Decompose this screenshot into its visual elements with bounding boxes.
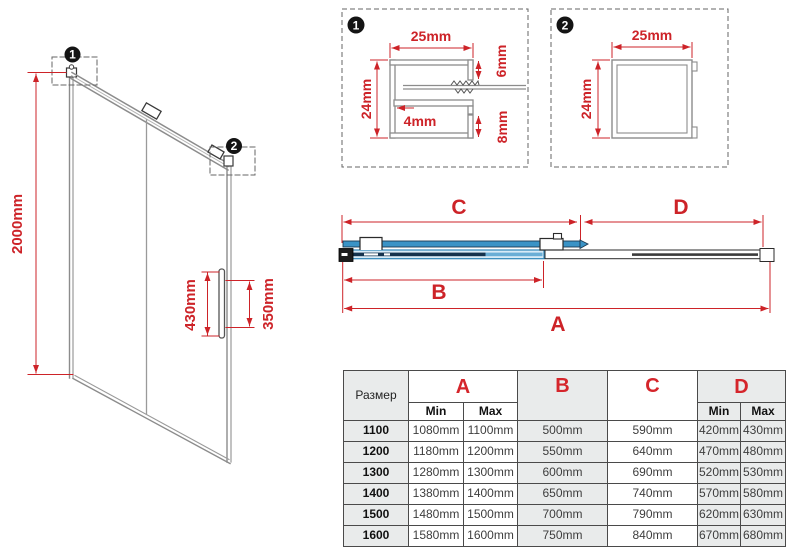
c-cell: 740mm bbox=[608, 484, 698, 505]
table-row: 1400 1380mm 1400mm 650mm 740mm 570mm 580… bbox=[344, 484, 786, 505]
c-cell: 590mm bbox=[608, 421, 698, 442]
size-cell: 1300 bbox=[344, 463, 409, 484]
column-header-b: B bbox=[518, 371, 608, 421]
table-row: 1500 1480mm 1500mm 700mm 790mm 620mm 630… bbox=[344, 505, 786, 526]
c-cell: 640mm bbox=[608, 442, 698, 463]
connector-bracket bbox=[540, 239, 563, 251]
b-cell: 600mm bbox=[518, 463, 608, 484]
door-diagram: 1 2 2000mm 430mm 350mm bbox=[9, 47, 277, 464]
a-min-cell: 1080mm bbox=[409, 421, 464, 442]
plan-c-label: C bbox=[451, 196, 466, 219]
detail-1-number: 1 bbox=[353, 18, 360, 32]
a-max-cell: 1600mm bbox=[464, 526, 518, 547]
b-cell: 500mm bbox=[518, 421, 608, 442]
a-min-cell: 1380mm bbox=[409, 484, 464, 505]
size-column-header: Размер bbox=[344, 371, 409, 421]
callout-1-number: 1 bbox=[69, 48, 76, 62]
d-max-cell: 580mm bbox=[741, 484, 786, 505]
a-min-cell: 1580mm bbox=[409, 526, 464, 547]
plan-b-label: B bbox=[431, 281, 446, 304]
detail-view-1: 1 25mm 24mm 4m bbox=[342, 9, 528, 167]
detail-view-2: 2 25mm 24mm bbox=[551, 9, 728, 167]
d-min-cell: 670mm bbox=[698, 526, 741, 547]
handle-length-label: 430mm bbox=[182, 279, 199, 331]
a-max-cell: 1400mm bbox=[464, 484, 518, 505]
column-header-a: A bbox=[409, 371, 518, 403]
gasket-serration bbox=[451, 81, 479, 85]
column-header-d: D bbox=[698, 371, 786, 403]
a-min-header: Min bbox=[409, 403, 464, 421]
callout-2-number: 2 bbox=[231, 139, 238, 153]
d-max-cell: 530mm bbox=[741, 463, 786, 484]
size-cell: 1400 bbox=[344, 484, 409, 505]
detail-2-width-label: 25mm bbox=[632, 27, 672, 43]
b-cell: 650mm bbox=[518, 484, 608, 505]
right-wall-profile bbox=[760, 249, 774, 262]
a-max-cell: 1500mm bbox=[464, 505, 518, 526]
rail-profile-section bbox=[612, 60, 697, 138]
a-min-cell: 1180mm bbox=[409, 442, 464, 463]
a-max-cell: 1200mm bbox=[464, 442, 518, 463]
c-cell: 790mm bbox=[608, 505, 698, 526]
d-min-cell: 520mm bbox=[698, 463, 741, 484]
d-max-cell: 680mm bbox=[741, 526, 786, 547]
plan-view: C D B A bbox=[339, 196, 774, 336]
a-min-cell: 1280mm bbox=[409, 463, 464, 484]
b-cell: 750mm bbox=[518, 526, 608, 547]
table-row: 1600 1580mm 1600mm 750mm 840mm 670mm 680… bbox=[344, 526, 786, 547]
detail-1-bottom-lip-label: 8mm bbox=[494, 111, 510, 144]
size-cell: 1600 bbox=[344, 526, 409, 547]
door-height-label: 2000mm bbox=[9, 194, 26, 254]
a-max-cell: 1100mm bbox=[464, 421, 518, 442]
plan-a-label: A bbox=[550, 313, 565, 336]
handle-inner-label: 350mm bbox=[260, 278, 277, 330]
shower-door-spec-sheet: 1 2 2000mm 430mm 350mm 1 bbox=[0, 0, 800, 552]
column-header-c: C bbox=[608, 371, 698, 421]
size-cell: 1100 bbox=[344, 421, 409, 442]
d-min-cell: 420mm bbox=[698, 421, 741, 442]
detail-2-number: 2 bbox=[562, 18, 569, 32]
top-right-cap bbox=[224, 156, 233, 166]
a-max-header: Max bbox=[464, 403, 518, 421]
detail-1-width-label: 25mm bbox=[411, 28, 451, 44]
size-table: Размер A B C D Min Max Min Max 1100 1080… bbox=[343, 370, 786, 547]
rail-clamp bbox=[142, 103, 161, 119]
detail-1-height-label: 24mm bbox=[358, 79, 374, 119]
roller-bracket bbox=[360, 238, 382, 251]
detail-2-height-label: 24mm bbox=[578, 79, 594, 119]
table-row: 1300 1280mm 1300mm 600mm 690mm 520mm 530… bbox=[344, 463, 786, 484]
d-min-header: Min bbox=[698, 403, 741, 421]
d-min-cell: 620mm bbox=[698, 505, 741, 526]
detail-1-top-lip-label: 6mm bbox=[493, 45, 509, 78]
a-max-cell: 1300mm bbox=[464, 463, 518, 484]
fixed-glass bbox=[632, 253, 758, 256]
d-min-cell: 570mm bbox=[698, 484, 741, 505]
d-max-cell: 630mm bbox=[741, 505, 786, 526]
track-end bbox=[580, 240, 588, 249]
d-min-cell: 470mm bbox=[698, 442, 741, 463]
detail-1-slot-label: 4mm bbox=[404, 113, 437, 129]
table-row: 1100 1080mm 1100mm 500mm 590mm 420mm 430… bbox=[344, 421, 786, 442]
c-cell: 840mm bbox=[608, 526, 698, 547]
d-max-header: Max bbox=[741, 403, 786, 421]
plan-d-label: D bbox=[673, 196, 688, 219]
table-row: 1200 1180mm 1200mm 550mm 640mm 470mm 480… bbox=[344, 442, 786, 463]
size-cell: 1500 bbox=[344, 505, 409, 526]
b-cell: 700mm bbox=[518, 505, 608, 526]
door-handle bbox=[219, 269, 225, 338]
b-cell: 550mm bbox=[518, 442, 608, 463]
a-min-cell: 1480mm bbox=[409, 505, 464, 526]
d-max-cell: 480mm bbox=[741, 442, 786, 463]
c-cell: 690mm bbox=[608, 463, 698, 484]
size-cell: 1200 bbox=[344, 442, 409, 463]
d-max-cell: 430mm bbox=[741, 421, 786, 442]
